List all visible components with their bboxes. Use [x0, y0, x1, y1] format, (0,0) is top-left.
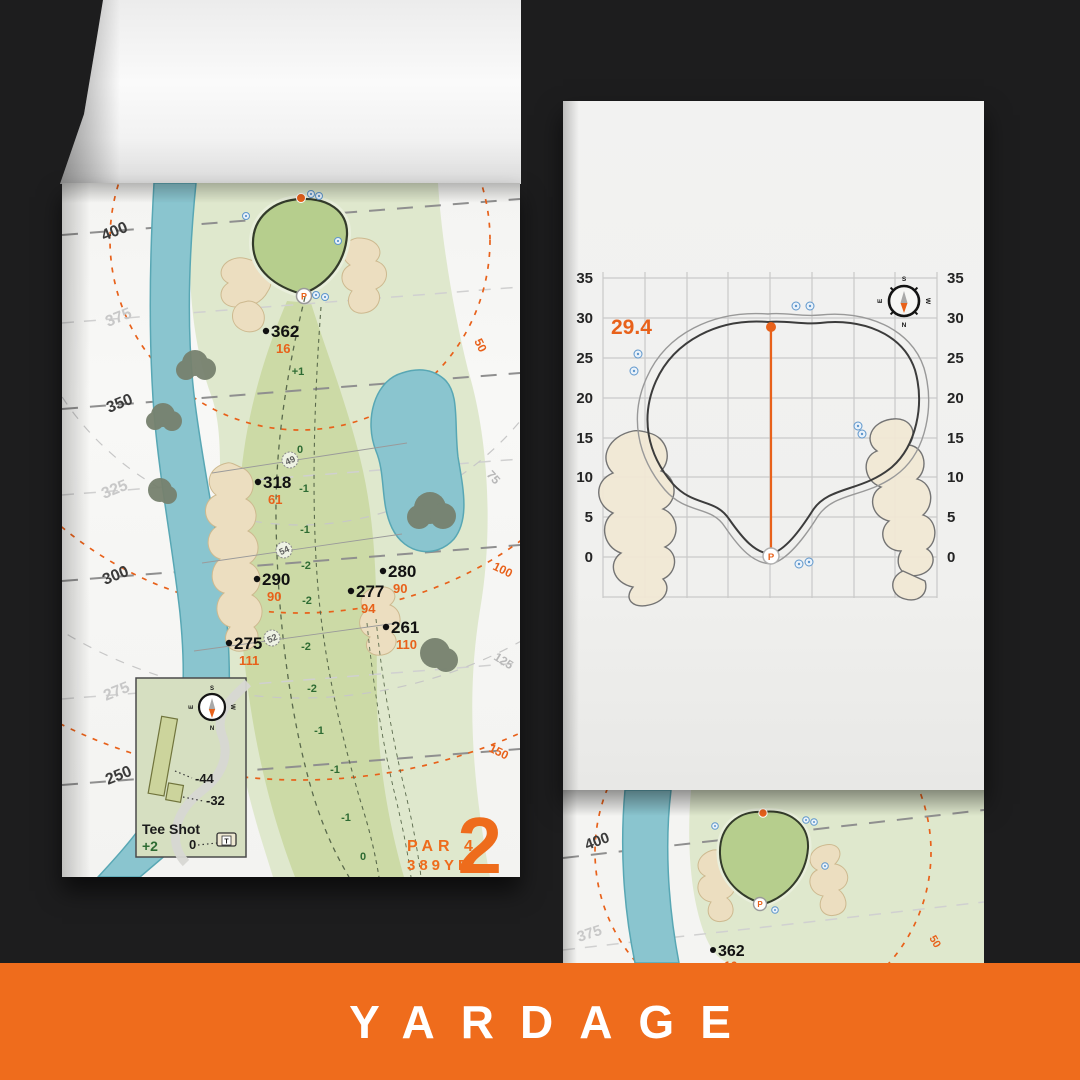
pin-label: P [757, 900, 763, 909]
svg-text:35: 35 [576, 270, 593, 287]
svg-text:400: 400 [583, 829, 612, 854]
measurement-dot [766, 322, 776, 332]
approach-dot [297, 194, 306, 203]
svg-text:375: 375 [103, 305, 134, 331]
svg-text:E: E [189, 705, 195, 709]
svg-text:+1: +1 [292, 366, 305, 378]
svg-text:N: N [902, 322, 907, 329]
svg-text:0: 0 [360, 851, 366, 863]
pin-label: P [768, 552, 775, 563]
yardage-banner: YARDAGE [0, 963, 1080, 1080]
svg-text:-2: -2 [302, 595, 312, 607]
svg-text:325: 325 [99, 477, 130, 503]
river [623, 790, 679, 963]
svg-text:350: 350 [104, 391, 135, 417]
svg-text:E: E [877, 298, 884, 303]
svg-text:-2: -2 [301, 641, 311, 653]
svg-text:318: 318 [263, 473, 291, 492]
svg-text:20: 20 [947, 390, 964, 407]
svg-text:30: 30 [576, 310, 593, 327]
svg-text:275: 275 [101, 679, 132, 705]
svg-text:25: 25 [576, 350, 593, 367]
svg-text:362: 362 [718, 943, 745, 960]
compass: S N W E [877, 276, 931, 329]
svg-text:110: 110 [396, 637, 417, 652]
svg-text:20: 20 [576, 390, 593, 407]
green-detail-page: 35 30 25 20 15 10 5 0 35 30 25 20 15 10 … [563, 101, 984, 790]
svg-text:0: 0 [297, 444, 303, 456]
next-hole-map-preview: P 362 16 400 375 50 [563, 790, 984, 963]
svg-text:0: 0 [585, 549, 593, 566]
svg-text:S: S [902, 276, 907, 283]
left-axis-ticks: 35 30 25 20 15 10 5 0 [576, 270, 593, 566]
svg-text:362: 362 [271, 322, 299, 341]
svg-text:15: 15 [947, 430, 964, 447]
tee-inset-title: Tee Shot [142, 821, 200, 837]
hole-number: 2 [458, 801, 503, 877]
approach-dot [759, 809, 767, 817]
right-axis-ticks: 35 30 25 20 15 10 5 0 [947, 270, 964, 566]
page-curl-shading [60, 0, 521, 184]
svg-text:300: 300 [100, 563, 131, 589]
svg-text:61: 61 [268, 492, 282, 507]
measurement-value: 29.4 [611, 316, 652, 339]
svg-text:375: 375 [575, 922, 604, 946]
svg-text:N: N [210, 726, 214, 732]
svg-text:-1: -1 [300, 524, 310, 536]
svg-text:94: 94 [361, 601, 376, 616]
svg-text:-2: -2 [307, 683, 317, 695]
svg-text:5: 5 [585, 509, 593, 526]
svg-text:30: 30 [947, 310, 964, 327]
svg-text:275: 275 [234, 634, 262, 653]
svg-text:90: 90 [267, 589, 281, 604]
svg-text:50: 50 [471, 336, 490, 354]
svg-text:111: 111 [239, 653, 259, 668]
side-yardage-labels: 400 375 350 325 300 275 250 [99, 219, 135, 789]
svg-text:250: 250 [103, 763, 134, 789]
tee-icon: T [217, 833, 236, 846]
green-detail-chart: 35 30 25 20 15 10 5 0 35 30 25 20 15 10 … [563, 101, 984, 790]
svg-text:16: 16 [276, 341, 290, 356]
flipped-blank-page [60, 0, 521, 184]
tee-score: +2 [142, 838, 158, 854]
svg-text:35: 35 [947, 270, 964, 287]
tee-offset-long: -44 [195, 771, 215, 786]
next-page-preview: P 362 16 400 375 50 [563, 790, 984, 963]
svg-text:-1: -1 [330, 764, 340, 776]
svg-text:10: 10 [576, 469, 593, 486]
svg-text:277: 277 [356, 582, 384, 601]
bunkers [599, 419, 935, 606]
tee-box-short [166, 783, 184, 802]
svg-text:15: 15 [576, 430, 593, 447]
hole-map-page: P 49 54 52 [62, 183, 520, 877]
svg-text:150: 150 [487, 741, 511, 763]
svg-text:-2: -2 [301, 560, 311, 572]
svg-text:280: 280 [388, 562, 416, 581]
svg-text:5: 5 [947, 509, 955, 526]
hole-map: P 49 54 52 [62, 183, 520, 877]
svg-text:125: 125 [491, 650, 516, 673]
svg-text:S: S [210, 686, 214, 692]
svg-text:W: W [229, 704, 235, 710]
svg-text:290: 290 [262, 570, 290, 589]
side-yardage-labels: 400 375 [575, 829, 612, 946]
svg-text:0: 0 [947, 549, 955, 566]
tee-offset-short: -32 [206, 793, 225, 808]
yardage-book-scene: P 49 54 52 [0, 0, 1080, 1080]
tee-zero: 0 [189, 837, 196, 852]
svg-text:10: 10 [947, 469, 964, 486]
svg-text:-1: -1 [314, 725, 324, 737]
svg-text:W: W [924, 298, 931, 305]
svg-text:25: 25 [947, 350, 964, 367]
svg-text:90: 90 [393, 581, 407, 596]
svg-text:-1: -1 [299, 483, 309, 495]
svg-text:400: 400 [99, 219, 130, 245]
svg-text:T: T [224, 839, 229, 846]
svg-text:261: 261 [391, 618, 419, 637]
svg-text:100: 100 [491, 559, 515, 581]
tee-shot-inset: S N W E -44 -32 Tee Shot +2 0 [136, 678, 248, 863]
svg-text:-1: -1 [341, 812, 351, 824]
banner-title: YARDAGE [349, 995, 757, 1049]
